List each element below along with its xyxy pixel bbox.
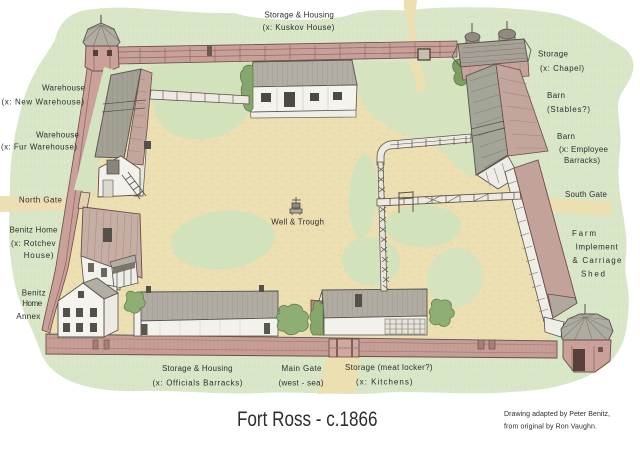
svg-text:Fort Ross - c.1866: Fort Ross - c.1866 [237, 408, 378, 431]
svg-text:from original by Ron Vaughn.: from original by Ron Vaughn. [504, 424, 597, 431]
svg-text:(x: Officials Barracks): (x: Officials Barracks) [153, 379, 243, 388]
svg-text:Drawing adapted by Peter Benit: Drawing adapted by Peter Benitz, [504, 411, 610, 418]
svg-text:(west - sea): (west - sea) [279, 379, 324, 388]
svg-text:South Gate: South Gate [565, 190, 608, 199]
svg-text:(x: Chapel): (x: Chapel) [540, 64, 584, 73]
svg-text:Implement: Implement [576, 243, 619, 252]
svg-text:Barn: Barn [557, 132, 575, 141]
svg-text:Benitz Home: Benitz Home [10, 225, 59, 234]
svg-text:(x: Kitchens): (x: Kitchens) [356, 378, 413, 387]
svg-text:& Carriage: & Carriage [572, 256, 622, 265]
svg-text:Main Gate: Main Gate [282, 364, 323, 373]
svg-text:Annex: Annex [16, 312, 40, 321]
svg-text:(x: Kuskov House): (x: Kuskov House) [263, 23, 335, 32]
svg-text:(x: Rotchev: (x: Rotchev [11, 239, 56, 248]
svg-text:Home: Home [22, 299, 43, 308]
svg-text:(Stables?): (Stables?) [547, 105, 590, 114]
svg-text:Barracks): Barracks) [564, 156, 600, 165]
svg-text:House): House) [24, 251, 54, 260]
svg-text:Storage & Housing: Storage & Housing [162, 364, 233, 373]
svg-text:Farm: Farm [572, 229, 596, 238]
svg-text:Barn: Barn [547, 91, 565, 100]
svg-text:North Gate: North Gate [19, 196, 63, 205]
svg-text:Well & Trough: Well & Trough [271, 218, 324, 227]
svg-text:Warehouse: Warehouse [36, 130, 80, 139]
svg-text:Benitz: Benitz [22, 288, 46, 297]
svg-text:Storage (meat locker?): Storage (meat locker?) [345, 363, 433, 372]
svg-text:Warehouse: Warehouse [42, 83, 86, 92]
svg-text:(x: Fur Warehouse): (x: Fur Warehouse) [1, 143, 77, 152]
svg-text:Storage & Housing: Storage & Housing [264, 10, 333, 19]
svg-text:Storage: Storage [538, 50, 569, 59]
svg-text:(x: Employee: (x: Employee [559, 145, 609, 154]
svg-text:(x: New Warehouse): (x: New Warehouse) [2, 98, 85, 107]
